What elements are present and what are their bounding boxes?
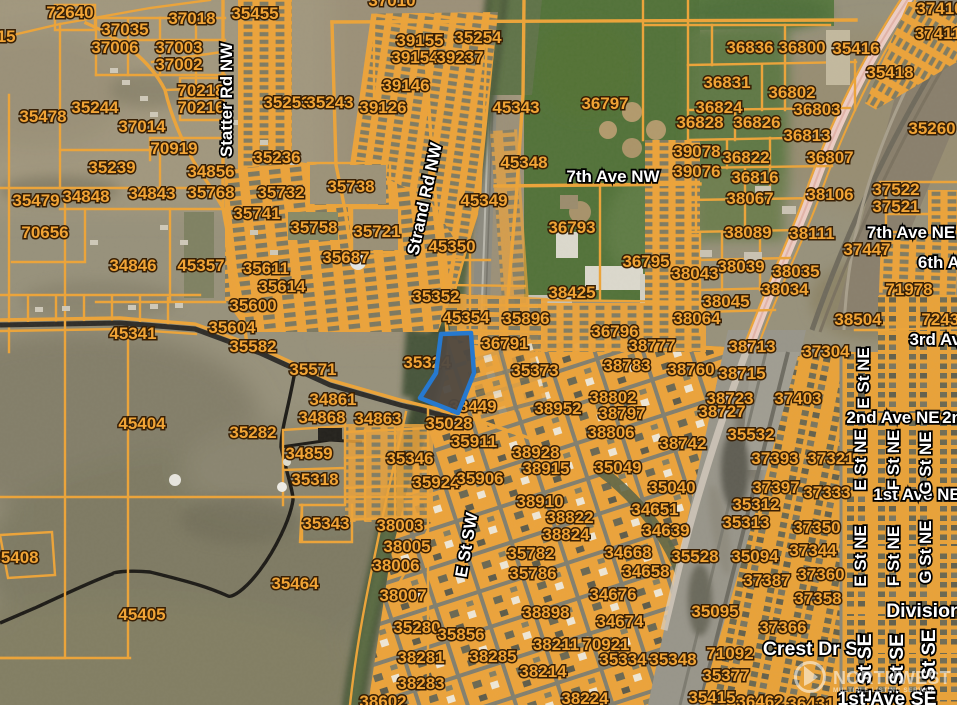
svg-text:34651: 34651	[631, 500, 678, 519]
svg-text:38043: 38043	[671, 264, 718, 283]
svg-text:39126: 39126	[359, 98, 406, 117]
svg-text:36816: 36816	[731, 168, 778, 187]
svg-text:38425: 38425	[548, 283, 595, 302]
svg-text:35528: 35528	[671, 547, 718, 566]
svg-text:37403: 37403	[774, 389, 821, 408]
svg-text:35334: 35334	[599, 650, 647, 669]
svg-text:38039: 38039	[717, 257, 764, 276]
svg-text:34856: 34856	[187, 162, 234, 181]
svg-text:35377: 35377	[702, 666, 749, 685]
svg-text:37360: 37360	[797, 565, 844, 584]
svg-text:35418: 35418	[866, 63, 913, 82]
svg-text:E St NE: E St NE	[851, 429, 870, 490]
svg-text:38067: 38067	[726, 189, 773, 208]
svg-text:34863: 34863	[354, 409, 401, 428]
svg-text:38915: 38915	[522, 459, 569, 478]
svg-text:45343: 45343	[492, 98, 539, 117]
svg-text:35028: 35028	[425, 414, 472, 433]
svg-text:35786: 35786	[509, 564, 556, 583]
svg-text:7th Ave NE: 7th Ave NE	[867, 223, 956, 242]
svg-text:37358: 37358	[794, 589, 841, 608]
svg-text:37018: 37018	[168, 9, 215, 28]
svg-text:38742: 38742	[659, 434, 706, 453]
svg-text:35614: 35614	[258, 277, 306, 296]
svg-text:E St NE: E St NE	[851, 525, 870, 586]
svg-text:38089: 38089	[724, 223, 771, 242]
svg-text:39237: 39237	[436, 48, 483, 67]
svg-text:38214: 38214	[519, 662, 567, 681]
svg-text:38715: 38715	[718, 364, 765, 383]
svg-text:35239: 35239	[88, 158, 135, 177]
svg-text:34859: 34859	[285, 444, 332, 463]
svg-text:37014: 37014	[118, 117, 166, 136]
svg-text:45349: 45349	[460, 191, 507, 210]
svg-text:36431: 36431	[787, 694, 834, 705]
svg-text:35280: 35280	[393, 618, 440, 637]
svg-text:38783: 38783	[603, 356, 650, 375]
svg-text:37321: 37321	[807, 449, 854, 468]
svg-text:45350: 45350	[428, 237, 475, 256]
svg-text:3rd Ave: 3rd Ave	[909, 330, 957, 349]
svg-text:39154: 39154	[391, 48, 439, 67]
svg-text:35373: 35373	[511, 361, 558, 380]
svg-text:37006: 37006	[91, 38, 138, 57]
svg-text:35687: 35687	[322, 248, 369, 267]
svg-text:38713: 38713	[728, 337, 775, 356]
svg-text:36836: 36836	[726, 38, 773, 57]
svg-text:35611: 35611	[243, 259, 289, 278]
svg-text:38283: 38283	[397, 674, 444, 693]
svg-text:Division: Division	[886, 600, 957, 622]
svg-text:34658: 34658	[622, 562, 669, 581]
svg-text:35906: 35906	[456, 469, 503, 488]
svg-text:37366: 37366	[759, 618, 806, 637]
svg-text:34846: 34846	[109, 256, 156, 275]
svg-text:38281: 38281	[397, 648, 444, 667]
svg-text:F St NE: F St NE	[884, 430, 903, 490]
svg-text:38111: 38111	[789, 224, 834, 243]
svg-text:35352: 35352	[412, 287, 459, 306]
svg-text:35455: 35455	[231, 4, 278, 23]
svg-text:35741: 35741	[233, 204, 280, 223]
svg-text:35571: 35571	[289, 360, 336, 379]
svg-text:34843: 34843	[128, 184, 175, 203]
svg-text:35896: 35896	[502, 309, 549, 328]
svg-text:35732: 35732	[257, 183, 304, 202]
svg-text:38504: 38504	[834, 310, 882, 329]
svg-text:35911: 35911	[451, 432, 497, 451]
svg-text:Statter Rd NW: Statter Rd NW	[217, 42, 236, 157]
svg-text:E St NE: E St NE	[854, 347, 873, 408]
svg-text:37035: 37035	[101, 20, 148, 39]
svg-text:36793: 36793	[548, 218, 595, 237]
svg-text:36800: 36800	[778, 38, 825, 57]
svg-text:36831: 36831	[703, 73, 750, 92]
svg-text:35768: 35768	[187, 183, 234, 202]
svg-text:35924: 35924	[412, 473, 460, 492]
svg-text:34868: 34868	[298, 408, 345, 427]
svg-text:34639: 34639	[642, 521, 689, 540]
svg-text:MULTIPLE LISTING SERVICE: MULTIPLE LISTING SERVICE	[833, 687, 936, 694]
svg-text:38007: 38007	[379, 586, 426, 605]
svg-text:35479: 35479	[12, 191, 59, 210]
svg-text:38797: 38797	[598, 404, 645, 423]
svg-text:70919: 70919	[150, 139, 197, 158]
svg-text:38003: 38003	[376, 516, 423, 535]
svg-text:37333: 37333	[803, 483, 850, 502]
svg-text:34668: 34668	[604, 543, 651, 562]
svg-text:36462: 36462	[736, 692, 783, 705]
svg-text:38034: 38034	[761, 280, 809, 299]
svg-text:38727: 38727	[698, 402, 745, 421]
svg-text:35600: 35600	[229, 296, 276, 315]
svg-text:37393: 37393	[751, 449, 798, 468]
svg-text:35095: 35095	[691, 602, 738, 621]
svg-text:36828: 36828	[676, 113, 723, 132]
svg-text:37344: 37344	[789, 541, 837, 560]
svg-text:37387: 37387	[743, 571, 790, 590]
svg-text:34848: 34848	[62, 187, 109, 206]
svg-text:G St NE: G St NE	[916, 431, 935, 494]
svg-text:7th Ave NW: 7th Ave NW	[566, 167, 660, 186]
svg-text:35415: 35415	[688, 688, 735, 705]
svg-text:37521: 37521	[872, 197, 919, 216]
svg-text:35243: 35243	[306, 93, 353, 112]
svg-text:35346: 35346	[386, 449, 433, 468]
svg-text:6th Ave: 6th Ave	[918, 253, 957, 272]
svg-text:39076: 39076	[673, 162, 720, 181]
svg-text:71978: 71978	[885, 280, 932, 299]
svg-text:37350: 37350	[793, 518, 840, 537]
svg-text:36813: 36813	[783, 126, 830, 145]
svg-text:35049: 35049	[594, 458, 641, 477]
svg-text:39078: 39078	[673, 142, 720, 161]
svg-text:38211: 38211	[533, 635, 579, 654]
svg-text:36791: 36791	[481, 334, 528, 353]
svg-text:35236: 35236	[253, 148, 300, 167]
svg-text:35721: 35721	[353, 222, 400, 241]
svg-text:45357: 45357	[177, 256, 224, 275]
svg-text:35318: 35318	[291, 470, 338, 489]
svg-text:35532: 35532	[727, 425, 774, 444]
svg-text:35094: 35094	[731, 547, 779, 566]
svg-text:38777: 38777	[628, 336, 675, 355]
svg-text:35582: 35582	[229, 337, 276, 356]
svg-text:36803: 36803	[793, 100, 840, 119]
svg-text:35856: 35856	[437, 625, 484, 644]
svg-text:38035: 38035	[772, 262, 819, 281]
svg-text:35604: 35604	[208, 318, 256, 337]
svg-text:34861: 34861	[309, 390, 356, 409]
svg-text:37410: 37410	[916, 0, 957, 18]
svg-text:36822: 36822	[722, 148, 769, 167]
svg-text:35313: 35313	[722, 513, 769, 532]
svg-text:72436: 72436	[921, 310, 957, 329]
svg-text:36795: 36795	[622, 252, 669, 271]
svg-text:NORTHWEST: NORTHWEST	[833, 668, 951, 688]
svg-text:70656: 70656	[21, 223, 68, 242]
svg-text:38602: 38602	[359, 692, 406, 705]
svg-text:2n: 2n	[942, 408, 957, 427]
svg-text:35254: 35254	[454, 28, 502, 47]
svg-text:35040: 35040	[648, 478, 695, 497]
svg-text:38224: 38224	[561, 689, 609, 705]
svg-text:71092: 71092	[706, 644, 753, 663]
svg-text:35416: 35416	[832, 39, 879, 58]
svg-text:45348: 45348	[500, 153, 547, 172]
svg-text:35478: 35478	[19, 107, 66, 126]
svg-text:36807: 36807	[806, 148, 853, 167]
svg-text:45405: 45405	[118, 605, 165, 624]
svg-text:35260: 35260	[908, 119, 955, 138]
svg-text:39146: 39146	[382, 76, 429, 95]
svg-text:38006: 38006	[372, 556, 419, 575]
svg-text:35282: 35282	[229, 423, 276, 442]
svg-text:72640: 72640	[46, 3, 93, 22]
svg-text:37411: 37411	[915, 24, 957, 43]
svg-text:35464: 35464	[271, 574, 319, 593]
svg-text:35253: 35253	[263, 93, 310, 112]
svg-text:35915: 35915	[0, 27, 16, 46]
svg-text:G St NE: G St NE	[916, 520, 935, 583]
svg-text:35244: 35244	[71, 98, 119, 117]
svg-text:38064: 38064	[673, 309, 721, 328]
svg-text:38898: 38898	[522, 603, 569, 622]
svg-text:34674: 34674	[596, 612, 644, 631]
svg-text:35348: 35348	[649, 650, 696, 669]
svg-text:35758: 35758	[290, 218, 337, 237]
svg-text:38806: 38806	[587, 423, 634, 442]
svg-text:38824: 38824	[542, 525, 590, 544]
svg-text:38760: 38760	[667, 360, 714, 379]
svg-text:35343: 35343	[302, 514, 349, 533]
svg-text:2nd Ave NE: 2nd Ave NE	[846, 408, 939, 427]
svg-text:37304: 37304	[802, 342, 850, 361]
svg-text:45354: 45354	[442, 308, 490, 327]
svg-text:37002: 37002	[155, 55, 202, 74]
svg-text:38005: 38005	[383, 537, 430, 556]
svg-text:38285: 38285	[469, 647, 516, 666]
svg-text:35312: 35312	[732, 495, 779, 514]
svg-text:37010: 37010	[368, 0, 415, 10]
svg-text:45341: 45341	[109, 324, 156, 343]
svg-text:34676: 34676	[589, 585, 636, 604]
svg-text:38106: 38106	[806, 185, 853, 204]
svg-text:45404: 45404	[118, 414, 166, 433]
svg-text:35408: 35408	[0, 548, 39, 567]
svg-text:36826: 36826	[733, 113, 780, 132]
svg-text:37447: 37447	[843, 240, 890, 259]
svg-text:36797: 36797	[581, 94, 628, 113]
svg-text:F St NE: F St NE	[884, 526, 903, 586]
svg-text:35738: 35738	[327, 177, 374, 196]
svg-text:35782: 35782	[507, 544, 554, 563]
svg-text:38952: 38952	[534, 399, 581, 418]
